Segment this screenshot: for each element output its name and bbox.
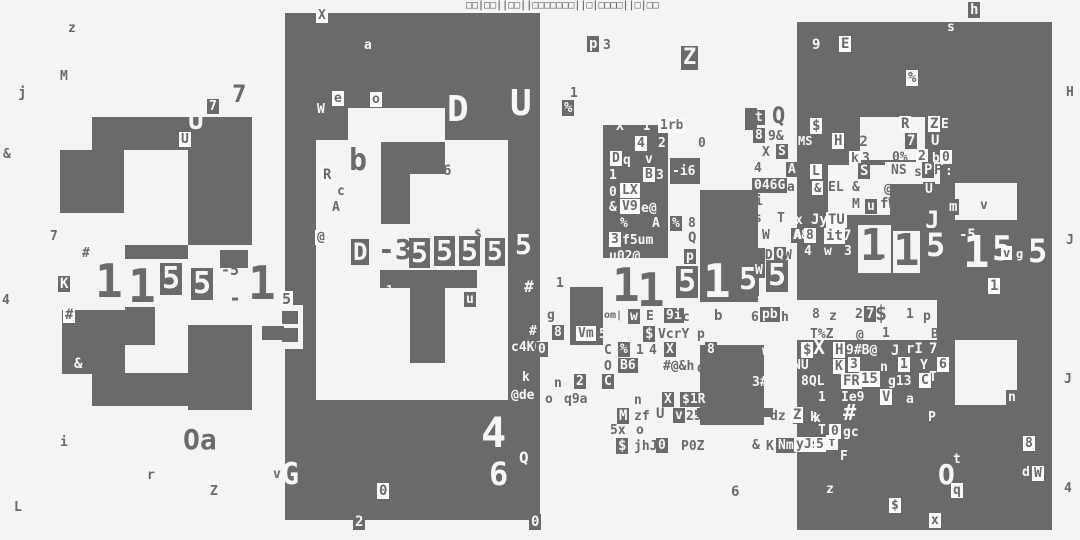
glyph-M: M: [852, 198, 860, 211]
glyph-w: w: [628, 309, 640, 324]
glyph-e: e: [332, 91, 344, 106]
glyph-4: 4: [635, 136, 647, 151]
glyph-#: #: [63, 307, 75, 323]
glyph-v: v: [273, 468, 281, 481]
glyph-Q: Q: [688, 231, 696, 245]
glyph-4: 4: [1064, 482, 1072, 495]
glyph-9#B@: 9#B@: [846, 344, 877, 357]
glyph-O: O: [604, 360, 612, 373]
glyph-S: S: [776, 144, 788, 159]
glyph-q: q: [623, 154, 631, 167]
glyph-5: 5: [434, 236, 455, 266]
glyph-1: 1: [128, 263, 156, 309]
glyph-$: $: [810, 118, 822, 134]
glyph-4: 4: [804, 245, 812, 258]
glyph-3: 3: [844, 245, 852, 258]
glyph-U: U: [656, 407, 664, 421]
glyph-zf: zf: [634, 410, 650, 423]
glyph-x: x: [795, 214, 803, 227]
glyph-t: t: [753, 110, 765, 125]
glyph-q9a: q9a: [564, 393, 587, 406]
glyph-B: B: [931, 328, 939, 341]
glyph-Nm: Nm: [776, 438, 796, 453]
glyph-I: I: [643, 120, 651, 133]
glyph-C: C: [602, 374, 614, 389]
glyph-0D: 0D: [757, 249, 773, 262]
glyph-6: 6: [751, 311, 759, 324]
glyph-LX: LX: [620, 183, 640, 198]
glyph-B: B: [643, 167, 655, 182]
glyph-jhJ: jhJ: [634, 440, 657, 453]
glyph-@: @: [856, 329, 864, 342]
glyph-D: D: [610, 151, 622, 166]
glyph-TU: TU: [826, 212, 847, 228]
glyph-A: A: [652, 217, 660, 230]
glyph-p: p: [697, 328, 705, 341]
glyph-%: %: [562, 100, 574, 116]
inner-block: [262, 326, 284, 340]
glyph-3: 3: [609, 232, 621, 247]
glyph-Z: Z: [928, 116, 940, 132]
glyph-0: 0: [656, 438, 668, 453]
glyph-5: 5: [409, 238, 430, 268]
glyph-1: 1: [95, 258, 123, 304]
glyph-5: 5: [1026, 234, 1049, 268]
glyph-W: W: [762, 229, 770, 242]
glyph-s: s: [754, 212, 762, 225]
glyph-J: J: [1064, 373, 1072, 386]
glyph-b: b: [349, 146, 367, 176]
glyph-@de: @de: [511, 389, 534, 402]
glyph-5: 5: [191, 268, 213, 300]
glyph-a: a: [364, 39, 372, 52]
gray-block: [125, 245, 188, 259]
glyph-D: D: [571, 309, 579, 323]
glyph-1: 1: [703, 258, 731, 304]
glyph-0: 0: [536, 342, 548, 357]
glyph-5: 5: [924, 228, 947, 262]
glyph-d: d: [697, 362, 705, 375]
glyph-8: 8: [812, 308, 820, 321]
glyph-#: #: [524, 279, 534, 295]
glyph-g13: g13: [888, 375, 911, 388]
glyph-Y: Y: [920, 359, 928, 372]
glyph-X: X: [813, 337, 825, 357]
glyph-7: 7: [232, 82, 246, 106]
glyph-VcrY: VcrY: [658, 328, 689, 341]
glyph-8G: 8G: [674, 184, 690, 197]
glyph-4: 4: [754, 162, 762, 175]
glyph-o: o: [370, 92, 382, 107]
glyph-$: $: [889, 498, 901, 513]
glyph-M: M: [60, 70, 68, 83]
glyph-B6: B6: [618, 358, 638, 373]
glyph-Oa: Oa: [183, 426, 217, 454]
glyph-#: #: [82, 247, 90, 260]
glyph-z: z: [68, 22, 76, 35]
glyph-0: 0: [829, 424, 841, 439]
inner-block: [410, 288, 445, 363]
glyph-&: &: [752, 439, 760, 452]
glyph-n: n: [1006, 390, 1018, 405]
glyph-0: 0: [529, 514, 541, 530]
glyph-7: 7: [905, 133, 917, 149]
glyph--3: -3: [378, 236, 412, 264]
glyph-W: W: [784, 249, 792, 262]
glyph-f5um: f5um: [622, 234, 653, 247]
glyph-&: &: [3, 148, 11, 161]
glyph-6: 6: [443, 164, 451, 178]
glyph-r: r: [147, 469, 155, 482]
glyph-1: 1: [893, 229, 920, 273]
glyph-A: A: [332, 201, 340, 214]
glyph-V9: V9: [620, 199, 640, 214]
glyph-8: 8: [705, 342, 717, 357]
glyph-&: &: [609, 201, 617, 214]
glyph-w&: w&: [762, 345, 778, 358]
glyph-15: 15: [859, 371, 880, 387]
glyph-Z: Z: [681, 46, 698, 70]
glyph-A: A: [786, 162, 798, 177]
glyph-8: 8: [552, 325, 564, 340]
glyph-H: H: [833, 342, 845, 358]
glyph-q: q: [951, 483, 963, 498]
glyph-x: x: [929, 513, 941, 528]
glyph-V: V: [880, 389, 892, 405]
glyph-fWP: fWP: [880, 197, 905, 211]
glyph-c: c: [682, 311, 690, 324]
glyph-1: 1: [609, 169, 617, 182]
glyph-a: a: [906, 393, 914, 406]
glyph-1: 1: [570, 87, 578, 100]
glyph-K: K: [766, 440, 774, 453]
glyph-5: 5: [814, 437, 826, 452]
glyph-&: &: [852, 181, 860, 194]
glyph-v: v: [645, 153, 653, 166]
glyph-Vm: Vm: [576, 326, 596, 341]
glyph-U: U: [923, 182, 935, 197]
glyph-%: %: [620, 217, 628, 230]
glyph-F: F: [840, 450, 848, 463]
glyph-W: W: [1032, 466, 1044, 481]
glyph-8: 8: [1023, 436, 1035, 451]
glyph-8: 8: [804, 228, 816, 243]
glyph-8: 8: [688, 217, 696, 230]
glyph-NU: NU: [793, 359, 809, 372]
glyph-2: 2: [574, 374, 586, 389]
glyph-gc: gc: [843, 426, 859, 439]
glyph-EL: EL: [828, 181, 844, 194]
glyph-4: 4: [481, 412, 506, 454]
glyph-X: X: [616, 120, 624, 133]
glyph--: -: [229, 288, 241, 308]
glyph-Q: Q: [772, 106, 785, 128]
glyph-&: &: [812, 181, 823, 195]
glyph-7: 7: [929, 342, 937, 356]
glyph-E: E: [646, 310, 654, 323]
glyph-c: c: [337, 185, 345, 198]
glyph-s: s: [947, 21, 955, 34]
glyph-T: T: [777, 212, 785, 225]
glyph-n: n: [554, 377, 562, 390]
glyph-Z: Z: [210, 485, 218, 498]
glyph-M: M: [617, 408, 629, 424]
glyph-K: K: [58, 276, 70, 292]
glyph-e@: e@: [641, 202, 657, 215]
glyph-R: R: [321, 167, 333, 183]
glyph-p: p: [684, 249, 696, 264]
glyph-U: U: [188, 108, 204, 134]
glyph-k: k: [810, 411, 818, 424]
glyph-1: 1: [637, 267, 665, 313]
glyph-o: o: [545, 393, 553, 406]
glyph-U: U: [179, 132, 191, 147]
glyph-%: %: [618, 342, 630, 357]
glyph-%: %: [670, 216, 682, 231]
glyph-5: 5: [160, 263, 182, 295]
glyph-1: 1: [612, 262, 640, 308]
glyph-J: J: [1066, 234, 1074, 247]
glyph-K: K: [833, 359, 845, 374]
glyph-5: 5: [485, 238, 505, 266]
inner-block: [697, 408, 773, 417]
glyph-25: 25: [686, 410, 702, 423]
glyph-7: 7: [207, 99, 219, 114]
glyph-T: T: [818, 424, 826, 437]
noise-pattern-canvas: □□|□□||□□||□□□□□□□||□|□□□□||□|□□ zMj77UU…: [0, 0, 1080, 540]
glyph-dz: dz: [770, 410, 786, 423]
glyph-j: j: [18, 86, 26, 100]
glyph-5: 5: [280, 291, 293, 308]
glyph-$: $: [643, 326, 655, 342]
glyph-n: n: [880, 361, 888, 374]
glyph-Z: Z: [791, 407, 803, 423]
glyph-02: 02: [851, 135, 868, 149]
glyph-h: h: [781, 311, 789, 324]
glyph-U: U: [510, 86, 532, 122]
gray-block: [188, 117, 252, 245]
glyph-H: H: [1066, 86, 1074, 99]
glyph-C: C: [604, 344, 612, 357]
glyph-#: #: [529, 325, 537, 338]
glyph-m: m: [947, 199, 959, 215]
glyph-2: 2: [658, 137, 666, 150]
glyph-u: u: [464, 292, 476, 307]
glyph-F: F: [934, 164, 942, 177]
glyph-i: i: [755, 195, 763, 208]
glyph-X: X: [762, 146, 770, 159]
glyph-3#: 3#: [752, 376, 768, 389]
glyph-$: $: [801, 342, 813, 358]
glyph-b: b: [714, 309, 722, 323]
glyph-2: 2: [855, 308, 863, 321]
glyph-0: 0: [377, 483, 389, 499]
gray-block: [92, 373, 220, 406]
glyph-p: p: [923, 310, 931, 323]
glyph-Q: Q: [519, 450, 529, 466]
glyph-H: H: [832, 133, 844, 149]
glyph-P: P: [922, 162, 934, 178]
glyph-1: 1: [248, 260, 276, 306]
glyph-0: 0: [609, 186, 617, 199]
inner-block: [381, 142, 445, 174]
glyph-E: E: [941, 118, 949, 131]
glyph-X: X: [664, 342, 676, 357]
glyph-L: L: [14, 501, 22, 514]
glyph-T: T: [881, 258, 889, 272]
glyph-6: 6: [489, 458, 508, 490]
glyph-7: 7: [843, 229, 851, 243]
glyph-7: 7: [50, 230, 58, 243]
glyph-6: 6: [731, 485, 739, 499]
glyph-S: S: [858, 163, 870, 179]
gray-block: [797, 22, 1052, 530]
glyph-5: 5: [766, 260, 788, 292]
glyph-v: v: [980, 199, 988, 212]
glyph-v: v: [673, 408, 685, 423]
glyph-j: j: [699, 197, 707, 211]
glyph-o: o: [636, 424, 644, 437]
glyph-G: G: [281, 460, 299, 490]
glyph-NS: NS: [891, 164, 907, 177]
glyph--5: -5: [221, 263, 239, 278]
glyph-@: @: [884, 183, 892, 196]
glyph-J: J: [891, 344, 899, 358]
glyph-8: 8: [753, 128, 765, 143]
glyph-D: D: [351, 239, 369, 265]
glyph-s: s: [914, 166, 922, 179]
glyph-o: o: [915, 184, 923, 197]
glyph-X: X: [316, 8, 328, 23]
glyph-$1R: $1R: [680, 392, 707, 407]
glyph-1: 1: [818, 391, 826, 404]
glyph-i: i: [60, 436, 68, 449]
glyph-w: w: [824, 245, 832, 258]
glyph-z: z: [829, 310, 837, 323]
glyph-R: R: [899, 116, 911, 132]
glyph-v: v: [1001, 246, 1012, 260]
glyph-1: 1: [906, 308, 914, 321]
glyph-5x: 5x: [610, 424, 626, 437]
glyph-C: C: [884, 118, 892, 131]
glyph-8QL: 8QL: [801, 375, 824, 388]
glyph-5: 5: [599, 328, 607, 341]
glyph-9: 9: [812, 38, 820, 52]
glyph--i6: -i6: [672, 165, 695, 178]
glyph-E: E: [839, 36, 851, 52]
glyph-1: 1: [556, 277, 564, 290]
inner-block: [282, 328, 298, 342]
glyph-pb: pb: [760, 307, 780, 322]
glyph-M: M: [682, 120, 690, 133]
glyph-5: 5: [459, 236, 480, 266]
inner-block: [380, 270, 477, 288]
glyph-X: X: [662, 392, 674, 407]
glyph-1: 1: [988, 278, 1000, 294]
glyph-4: 4: [649, 344, 657, 357]
glyph-P0Z: P0Z: [681, 440, 704, 453]
glyph-3: 3: [656, 169, 664, 182]
glyph-p: p: [587, 36, 599, 52]
glyph-4: 4: [2, 294, 10, 307]
glyph-rI: rI: [906, 342, 923, 356]
glyph-#@&h: #@&h: [663, 360, 694, 373]
glyph-a: a: [787, 181, 795, 194]
glyph-u: u: [865, 199, 877, 214]
glyph-g: g: [1016, 248, 1023, 260]
glyph-n: n: [634, 394, 642, 407]
glyph-5: 5: [513, 230, 534, 260]
glyph-1: 1: [963, 231, 990, 275]
glyph-T: T: [929, 371, 937, 384]
glyph-@: @: [315, 230, 327, 245]
glyph-%: %: [906, 70, 918, 86]
glyph-it: it: [824, 228, 845, 244]
glyph-3: 3: [848, 357, 860, 372]
glyph-1: 1: [882, 327, 890, 340]
glyph-MS: MS: [798, 135, 812, 147]
glyph-5: 5: [676, 266, 698, 298]
glyph-P: P: [928, 411, 936, 424]
glyph-6: 6: [937, 357, 949, 372]
glyph-k: k: [522, 371, 530, 384]
glyph-:: :: [943, 164, 955, 179]
glyph-0: 0: [698, 137, 706, 150]
glyph-1: 1: [386, 284, 393, 296]
inner-block: [282, 311, 298, 324]
glyph-1: 1: [636, 344, 644, 357]
glyph-&: &: [74, 357, 82, 371]
glyph-9i: 9i: [664, 308, 684, 323]
glyph-g: g: [547, 309, 555, 322]
glyph-9&: 9&: [768, 130, 784, 143]
top-box-line: □□|□□||□□||□□□□□□□||□|□□□□||□|□□: [466, 1, 659, 11]
inner-block: [381, 174, 410, 224]
glyph-W: W: [317, 103, 325, 116]
glyph-1: 1: [898, 357, 910, 372]
glyph-U: U: [931, 134, 939, 148]
glyph-046G: 046G: [752, 178, 787, 193]
glyph-2: 2: [353, 514, 365, 530]
glyph-$: $: [875, 303, 887, 323]
glyph-om|: om|: [604, 311, 622, 321]
glyph-$: $: [616, 438, 628, 454]
glyph-A: A: [794, 229, 802, 242]
gray-block: [60, 150, 124, 213]
glyph-h: h: [968, 2, 980, 18]
glyph-d: d: [1022, 466, 1030, 479]
glyph-L: L: [810, 164, 822, 179]
glyph-#: #: [843, 403, 856, 425]
glyph-D: D: [447, 92, 469, 128]
glyph-3: 3: [603, 39, 611, 52]
block-cutout: [348, 108, 445, 140]
glyph-W: W: [755, 264, 763, 277]
glyph-z: z: [826, 483, 834, 496]
